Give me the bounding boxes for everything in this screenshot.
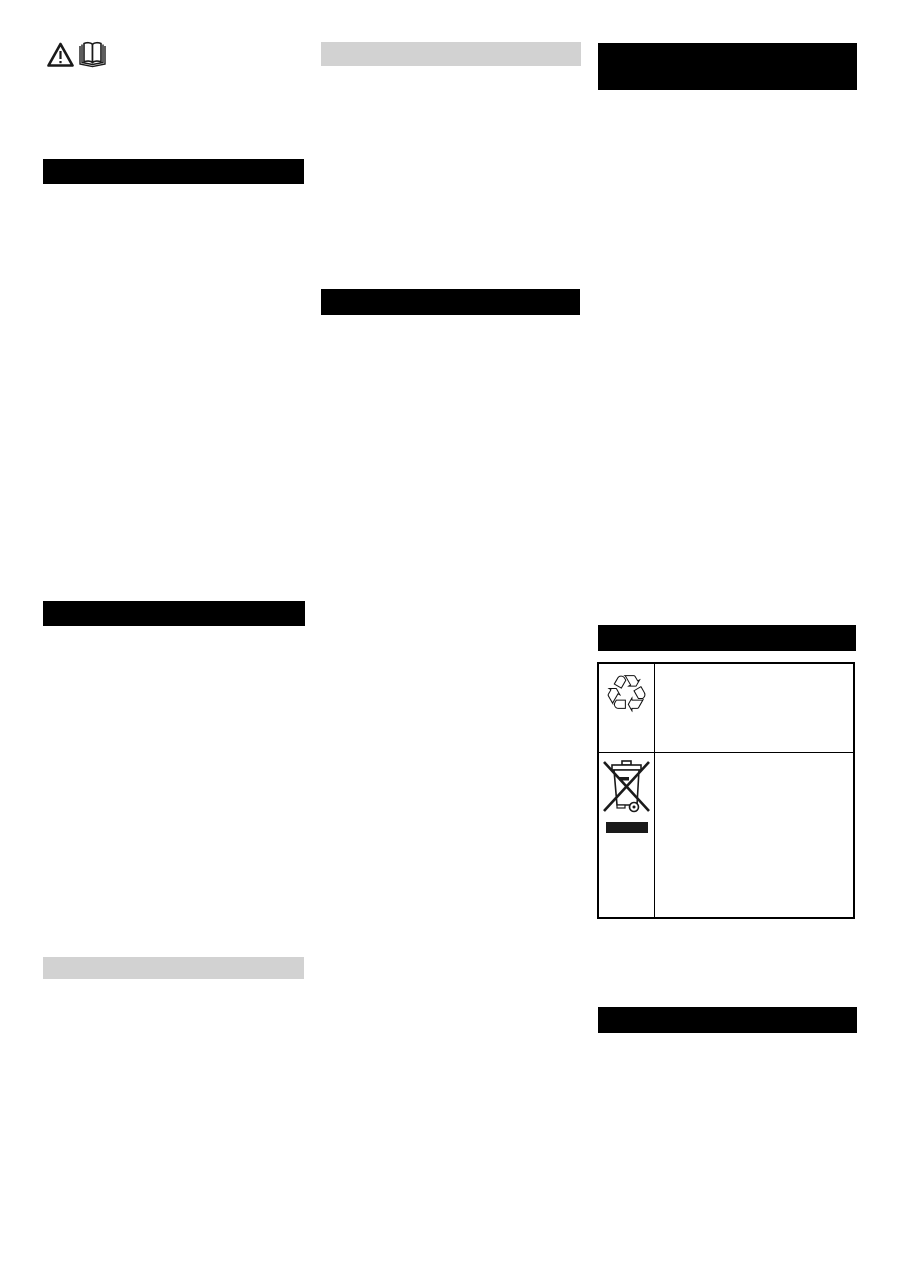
table-cell-icon — [599, 753, 655, 917]
table-row: ♲ — [599, 664, 853, 752]
redacted-heading-right-3 — [598, 1007, 857, 1033]
recycling-symbol-icon: ♲ — [603, 669, 650, 721]
table-cell-icon: ♲ — [599, 664, 655, 752]
disposal-symbols-table: ♲ — [597, 662, 855, 919]
redacted-subheading-middle — [321, 42, 581, 66]
redacted-heading-left-2 — [43, 601, 305, 626]
weee-black-bar — [606, 822, 648, 833]
warning-triangle-icon — [46, 41, 75, 69]
table-row — [599, 752, 853, 917]
redacted-subheading-left — [43, 957, 304, 979]
open-book-icon — [77, 40, 108, 69]
manual-page: ♲ — [0, 0, 900, 1273]
weee-crossed-bin-icon — [603, 758, 651, 816]
table-cell-text — [655, 664, 853, 752]
safety-icon-group — [46, 40, 108, 69]
redacted-heading-right-1 — [598, 43, 857, 90]
table-cell-text — [655, 753, 853, 917]
redacted-heading-right-2 — [598, 625, 856, 651]
redacted-heading-left-1 — [43, 159, 304, 184]
redacted-heading-middle — [321, 289, 580, 315]
